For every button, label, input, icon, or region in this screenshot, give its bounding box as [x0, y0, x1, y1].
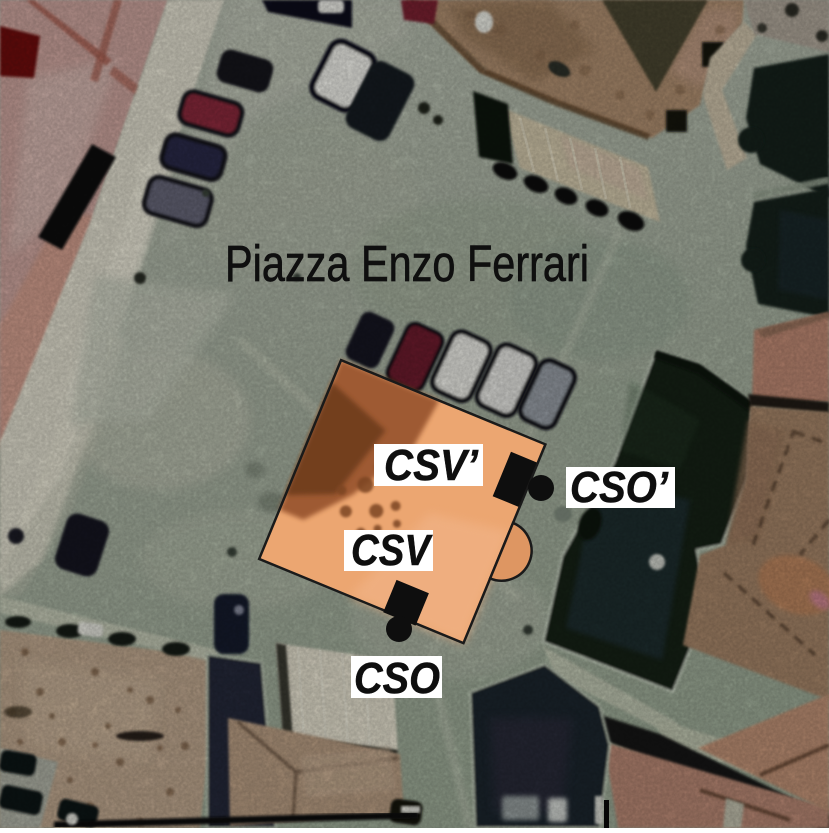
svg-text:CSO’: CSO’ [570, 463, 669, 512]
svg-text:CSV: CSV [351, 526, 433, 575]
svg-text:CSV’: CSV’ [384, 441, 479, 490]
svg-text:CSO: CSO [354, 654, 440, 703]
svg-text:Piazza Enzo Ferrari: Piazza Enzo Ferrari [225, 235, 589, 292]
